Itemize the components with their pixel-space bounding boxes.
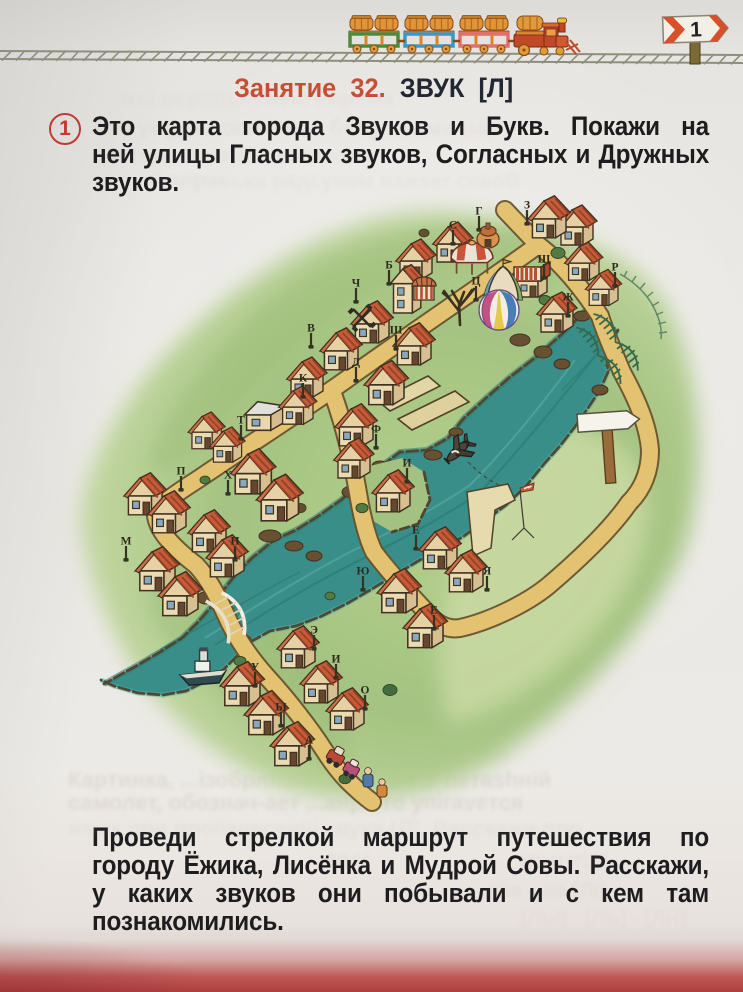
svg-text:Е: Е (430, 605, 438, 617)
svg-text:З: З (524, 200, 530, 212)
svg-text:Б: Б (385, 260, 393, 272)
svg-text:С: С (449, 220, 457, 232)
svg-text:Ч: Ч (352, 278, 361, 290)
svg-text:Щ: Щ (538, 254, 551, 266)
svg-text:М: М (121, 536, 132, 548)
svg-text:Р: Р (611, 262, 618, 274)
svg-text:К: К (299, 373, 308, 385)
svg-text:Ж: Ж (562, 292, 574, 304)
svg-text:И: И (332, 654, 341, 666)
svg-text:Э: Э (310, 625, 318, 637)
svg-text:В: В (307, 323, 315, 335)
svg-text:Г: Г (475, 206, 482, 218)
svg-text:П: П (177, 466, 186, 478)
svg-text:Ы: Ы (275, 702, 287, 714)
svg-text:Е: Е (412, 525, 420, 537)
svg-text:Н: Н (231, 536, 240, 548)
svg-text:Ш: Ш (390, 325, 403, 337)
svg-text:И: И (403, 458, 412, 470)
svg-text:Я: Я (483, 566, 492, 578)
svg-text:Ф: Ф (371, 424, 381, 436)
svg-text:У: У (251, 662, 260, 674)
svg-text:Т: Т (237, 415, 245, 427)
svg-text:Д: Д (352, 357, 360, 369)
svg-text:А: А (305, 735, 314, 747)
svg-text:Ц: Ц (472, 276, 481, 288)
svg-text:Ю: Ю (357, 566, 370, 578)
svg-text:Х: Х (224, 470, 233, 482)
svg-text:О: О (361, 685, 370, 697)
